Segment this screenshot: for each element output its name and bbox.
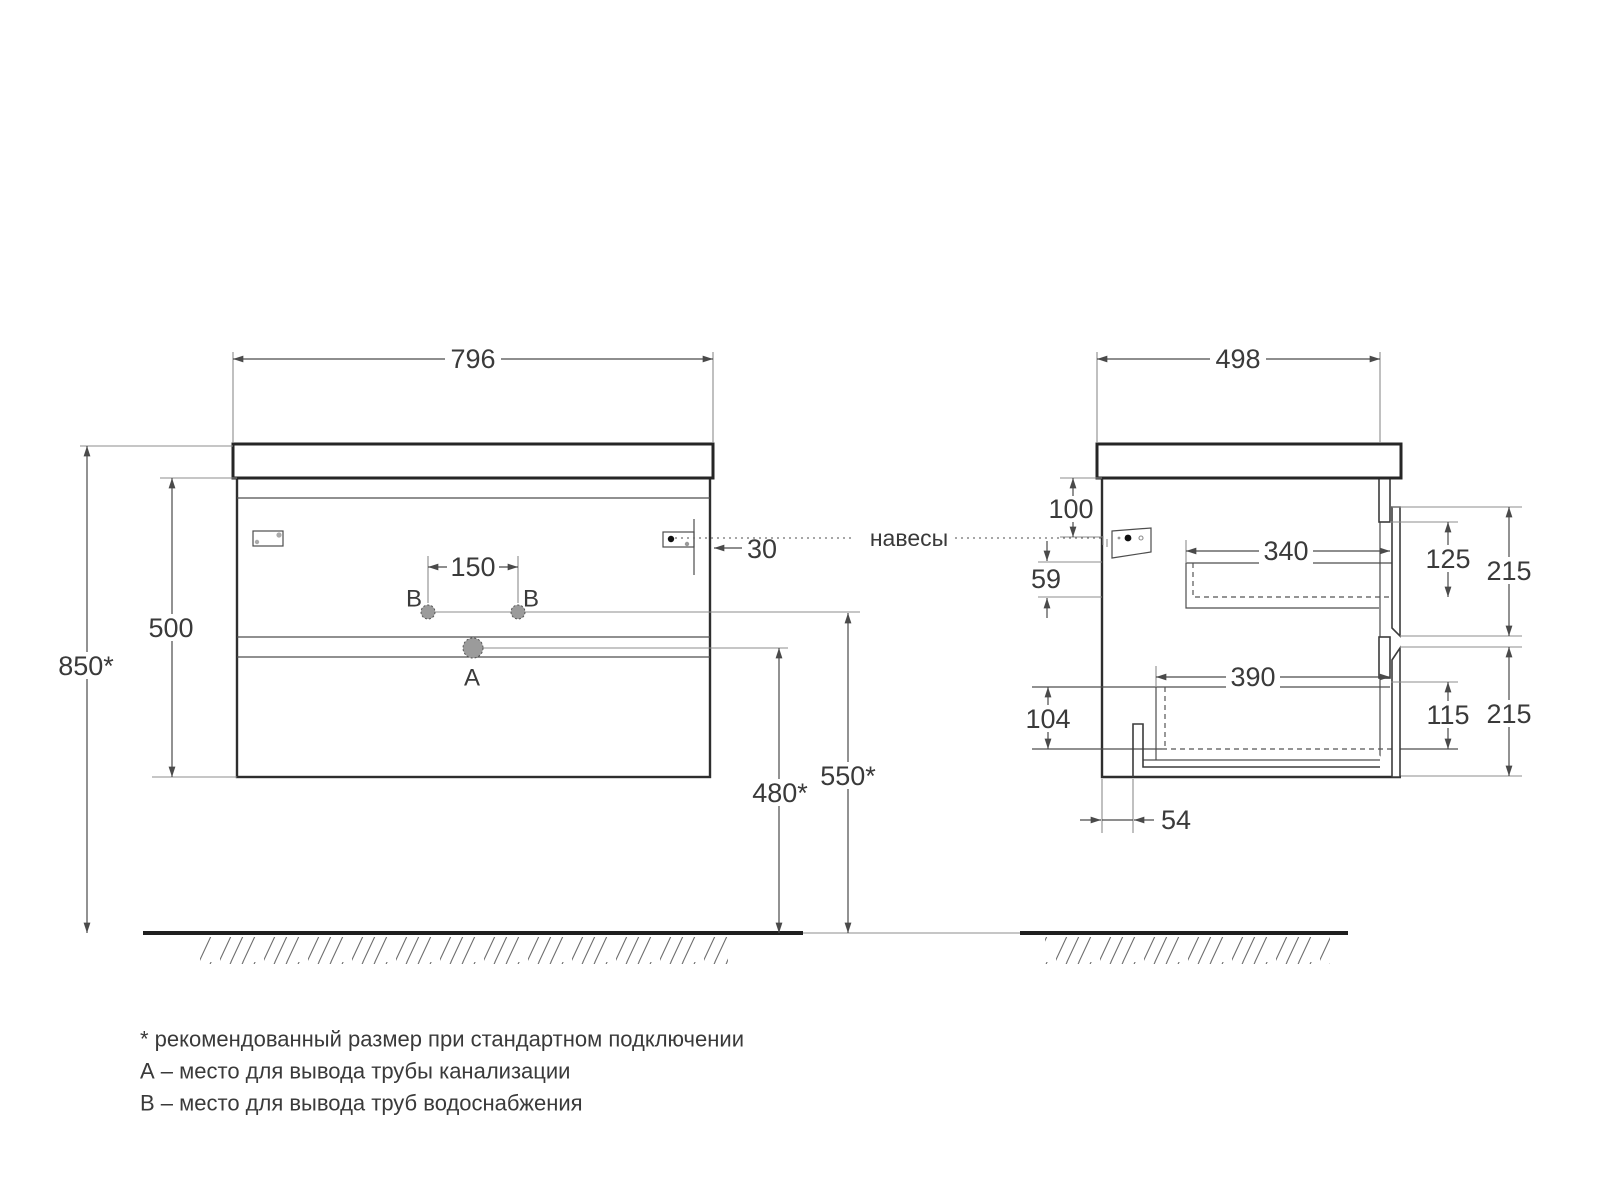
dim-498-label: 498 (1215, 344, 1260, 374)
dim-upper-inner-59: 59 (1031, 541, 1102, 618)
side-view (1032, 444, 1458, 777)
dim-796-label: 796 (450, 344, 495, 374)
water-hole-right-label: B (523, 586, 539, 613)
dim-215-lower-label: 215 (1486, 699, 1531, 729)
dim-hanger-top-100: 100 (1045, 478, 1102, 537)
dim-850-label: 850* (58, 651, 114, 681)
drain-hole-label: A (464, 665, 480, 692)
ground (143, 933, 1348, 964)
side-cabinet-body (1102, 478, 1401, 777)
dim-upper-drawer-340: 340 (1186, 536, 1390, 566)
dim-drain-height-480: 480* (748, 648, 811, 933)
drain-hole (463, 638, 483, 658)
note-a: А – место для вывода трубы канализации (140, 1059, 570, 1084)
dim-width-796: 796 (233, 344, 713, 443)
hanger-screw-black (668, 536, 674, 542)
bracket-hole-small (1118, 537, 1121, 540)
dim-trap-offset-54: 54 (1080, 779, 1191, 835)
ground-hatch-left (200, 937, 728, 964)
lower-drawer-front (1392, 648, 1400, 777)
dim-lower-recess-115: 115 (1391, 682, 1475, 749)
notes: * рекомендованный размер при стандартном… (140, 1027, 744, 1116)
technical-drawing-page: B B A 796 850* 500 150 30 480* (0, 0, 1620, 1200)
dim-390-label: 390 (1230, 662, 1275, 692)
hangers-label: навесы (870, 525, 948, 551)
hanger-screw (255, 540, 259, 544)
vanity-dimension-drawing: B B A 796 850* 500 150 30 480* (0, 0, 1620, 1200)
note-b: В – место для вывода труб водоснабжения (140, 1091, 583, 1116)
dim-125-label: 125 (1425, 544, 1470, 574)
mid-rail (1379, 637, 1390, 678)
dim-cabinet-height-500: 500 (144, 478, 237, 777)
dim-150-label: 150 (450, 552, 495, 582)
dim-104-label: 104 (1025, 704, 1070, 734)
dim-lower-inner-104: 104 (1022, 687, 1075, 749)
dim-115-label: 115 (1426, 700, 1469, 730)
upper-drawer-front (1392, 507, 1400, 636)
dim-59-label: 59 (1031, 564, 1061, 594)
water-hole-left (421, 605, 435, 619)
front-countertop (233, 444, 713, 478)
dim-upper-recess-125: 125 (1390, 522, 1475, 597)
dim-550-label: 550* (820, 761, 876, 791)
water-hole-left-label: B (406, 586, 422, 613)
dim-100-label: 100 (1048, 494, 1093, 524)
upper-drawer-dashed (1193, 563, 1390, 597)
dim-overall-height-850: 850* (55, 446, 233, 933)
top-rail (1379, 478, 1390, 522)
hanger-screw (685, 542, 689, 546)
extension-lines (1102, 779, 1133, 833)
dim-500-label: 500 (148, 613, 193, 643)
hangers-callout: навесы (675, 524, 1125, 551)
bracket-pin-black (1125, 535, 1132, 542)
front-view: B B A (233, 444, 860, 777)
dim-54-label: 54 (1161, 805, 1191, 835)
ground-hatch-right (1045, 937, 1330, 964)
dim-water-height-550: 550* (817, 613, 880, 933)
note-asterisk: * рекомендованный размер при стандартном… (140, 1027, 744, 1052)
front-cabinet-body (237, 478, 710, 777)
side-countertop (1097, 444, 1401, 478)
dim-depth-498: 498 (1097, 344, 1380, 443)
dim-215-upper-label: 215 (1486, 556, 1531, 586)
dim-480-label: 480* (752, 778, 808, 808)
hanger-screw (276, 532, 281, 537)
dim-340-label: 340 (1263, 536, 1308, 566)
